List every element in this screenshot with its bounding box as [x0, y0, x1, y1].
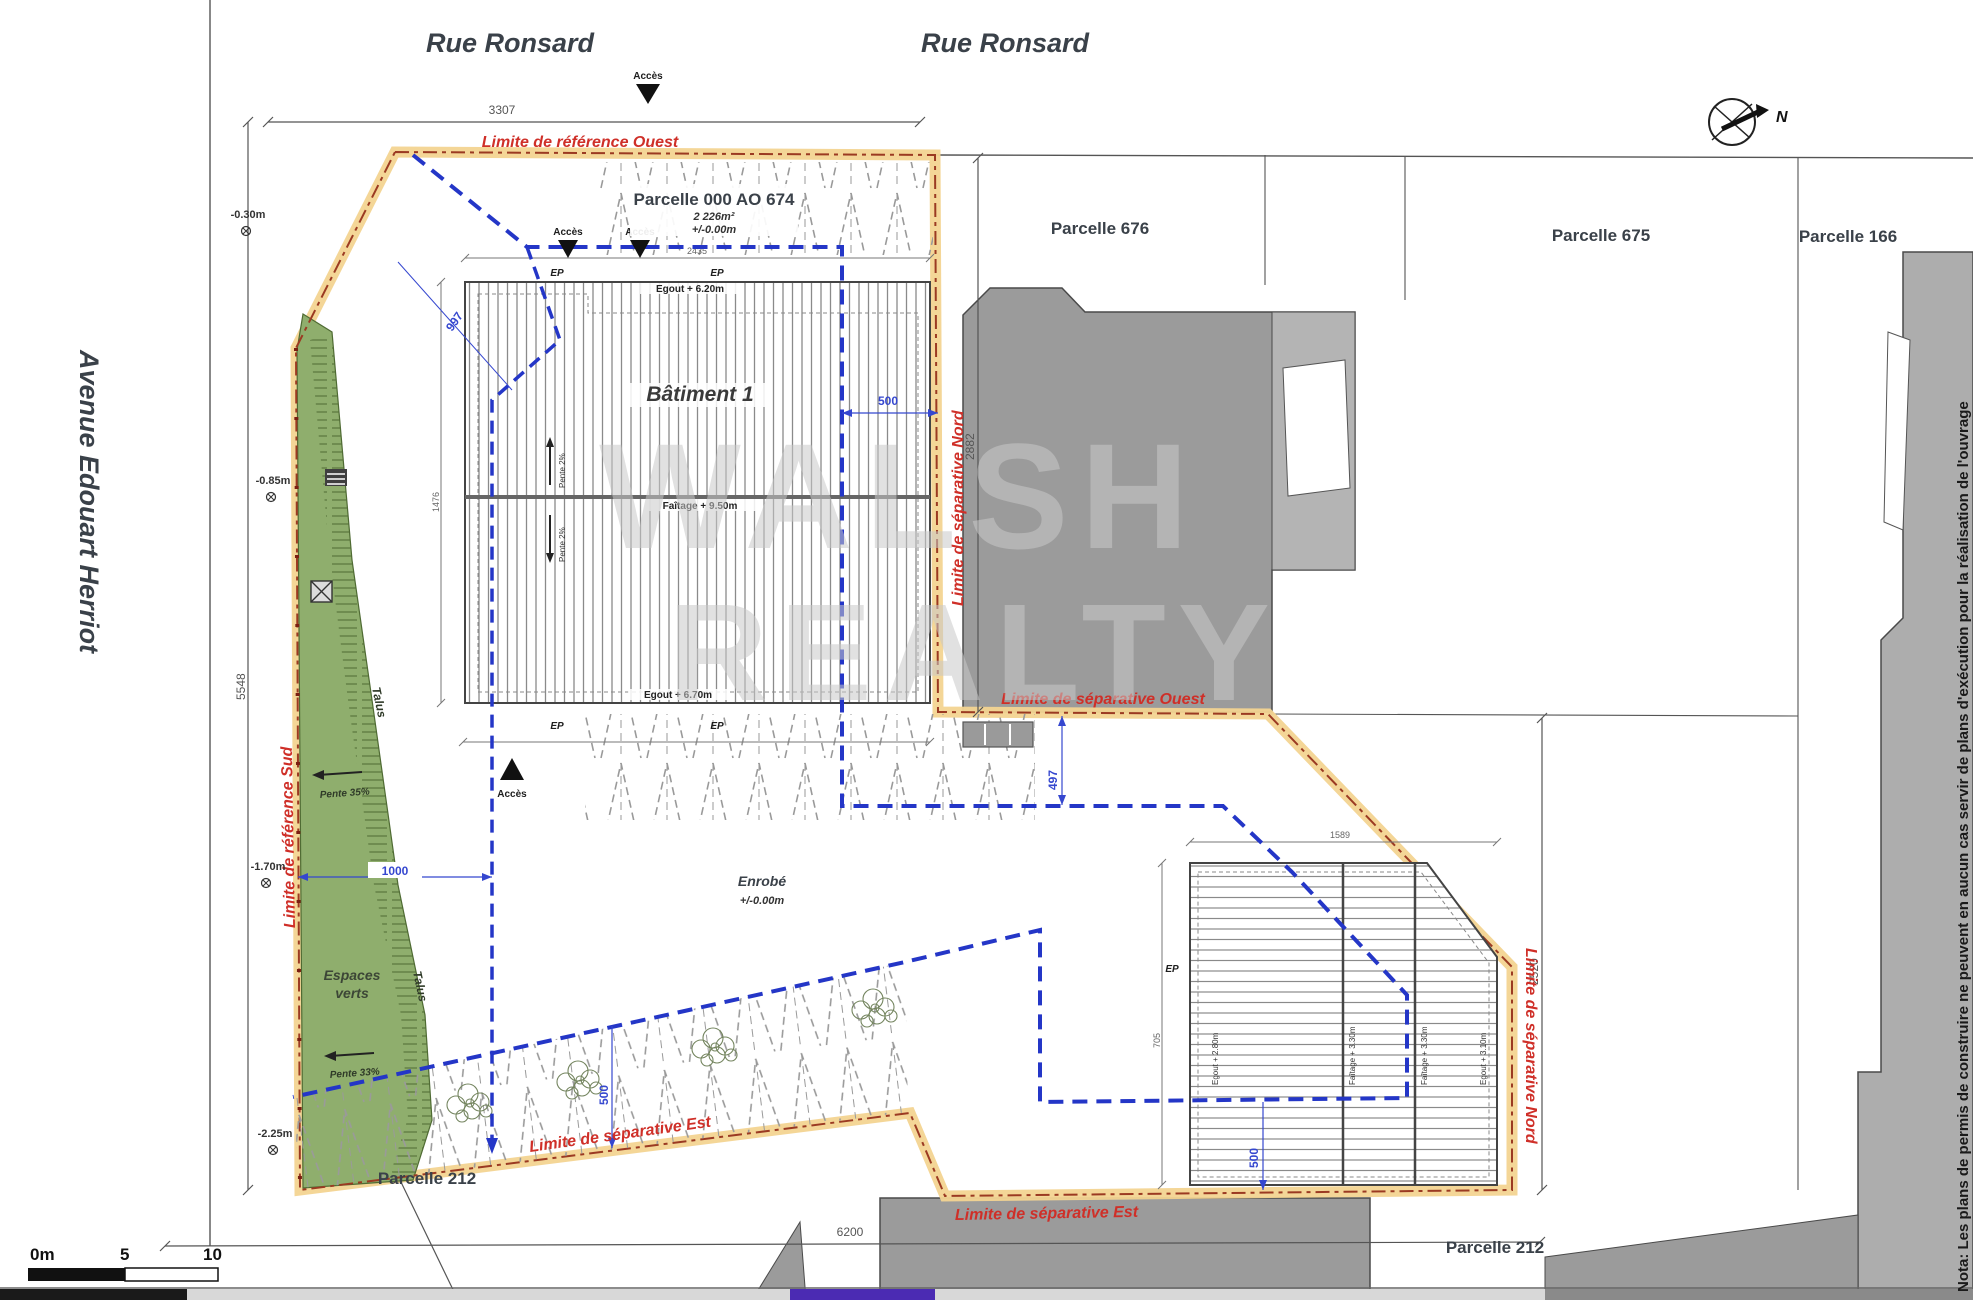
- scale-bar-black: [28, 1268, 125, 1281]
- site-plan-page: Bâtiment 1 Faîtage + 9.50m Egout + 6.20m…: [0, 0, 1973, 1300]
- building-2-faitage-2: Faîtage + 3.30m: [1420, 1026, 1429, 1085]
- street-avenue-herriot: Avenue Edouart Herriot: [74, 349, 104, 654]
- limit-sep-est-2: Limite de séparative Est: [955, 1204, 1139, 1224]
- building-1-egout-top: Egout + 6.20m: [656, 284, 724, 295]
- building-1-height-dim: 1476: [431, 492, 441, 512]
- parcel-main-area: 2 226m²: [693, 211, 735, 223]
- parcel-675-label: Parcelle 675: [1552, 226, 1650, 245]
- building-2-egout-left: Egout + 2.80m: [1211, 1032, 1220, 1085]
- parcel-212-label-left: Parcelle 212: [378, 1169, 476, 1188]
- level-170: -1.70m: [251, 861, 286, 873]
- ep-label: EP: [550, 721, 564, 732]
- watermark-line2: REALTY: [668, 576, 1282, 730]
- level-225: -2.25m: [258, 1128, 293, 1140]
- level-085: -0.85m: [256, 475, 291, 487]
- scale-0m: 0m: [30, 1245, 55, 1264]
- building-notch: [1283, 360, 1350, 496]
- acces-label-3: Accès: [497, 789, 527, 800]
- bottom-strip: [0, 1288, 1973, 1300]
- note-nota: Nota: Les plans de permis de construire …: [1955, 401, 1972, 1292]
- parcel-676-label: Parcelle 676: [1051, 219, 1149, 238]
- parcel-main-block: Parcelle 000 AO 674 2 226m² +/-0.00m: [630, 184, 798, 236]
- watermark-line1: WALSH: [599, 412, 1201, 580]
- acces-label-1: Accès: [553, 227, 583, 238]
- espaces-label-2: verts: [335, 985, 369, 1001]
- ep-label: EP: [1165, 964, 1179, 975]
- ep-label: EP: [550, 268, 564, 279]
- scale-10: 10: [203, 1245, 222, 1264]
- parcel-main-label: Parcelle 000 AO 674: [634, 190, 796, 209]
- watermark: WALSH REALTY: [599, 412, 1282, 730]
- acces-label-street: Accès: [633, 71, 663, 82]
- scale-5: 5: [120, 1245, 129, 1264]
- parcel-212-label-right: Parcelle 212: [1446, 1238, 1544, 1257]
- dim-497: 497: [1046, 770, 1060, 790]
- building-1-label: Bâtiment 1: [646, 383, 753, 406]
- enrobe-level: +/-0.00m: [740, 895, 785, 907]
- bottom-strip-accent: [790, 1289, 935, 1300]
- parcel-166-label: Parcelle 166: [1799, 227, 1897, 246]
- building-2-faitage: Faîtage + 3.30m: [1348, 1026, 1357, 1085]
- dim-5548: 5548: [234, 673, 248, 700]
- street-rue-ronsard-left: Rue Ronsard: [426, 28, 595, 58]
- dim-6200: 6200: [837, 1225, 864, 1239]
- building-2-width-dim: 1589: [1330, 830, 1350, 840]
- limit-sep-nord-2: Limite de séparative Nord: [1522, 948, 1539, 1145]
- street-rue-ronsard-right: Rue Ronsard: [921, 28, 1090, 58]
- site-plan-drawing: Bâtiment 1 Faîtage + 9.50m Egout + 6.20m…: [0, 0, 1973, 1300]
- dim-500-c: 500: [1247, 1148, 1261, 1168]
- espaces-label-1: Espaces: [324, 967, 381, 983]
- dim-1000: 1000: [382, 864, 409, 878]
- parcel-main-level: +/-0.00m: [692, 224, 737, 236]
- building-2-egout-right: Egout + 3.10m: [1479, 1032, 1488, 1085]
- dim-3307: 3307: [489, 103, 516, 117]
- level-030: -0.30m: [231, 209, 266, 221]
- scale-bar-white: [125, 1268, 218, 1281]
- building-1-pente-up: Pente 2%: [558, 453, 567, 488]
- building-2-height-dim: 705: [1152, 1033, 1162, 1048]
- dim-500-a: 500: [878, 394, 898, 408]
- limit-ref-ouest: Limite de référence Ouest: [482, 134, 679, 151]
- enrobe-label: Enrobé: [738, 873, 786, 889]
- dim-500-b: 500: [597, 1085, 611, 1105]
- north-label: N: [1776, 109, 1788, 126]
- building-1-pente-down: Pente 2%: [558, 527, 567, 562]
- limit-ref-sud: Limite de référence Sud: [279, 745, 299, 928]
- xbox-icon: [311, 581, 332, 602]
- ep-label: EP: [710, 268, 724, 279]
